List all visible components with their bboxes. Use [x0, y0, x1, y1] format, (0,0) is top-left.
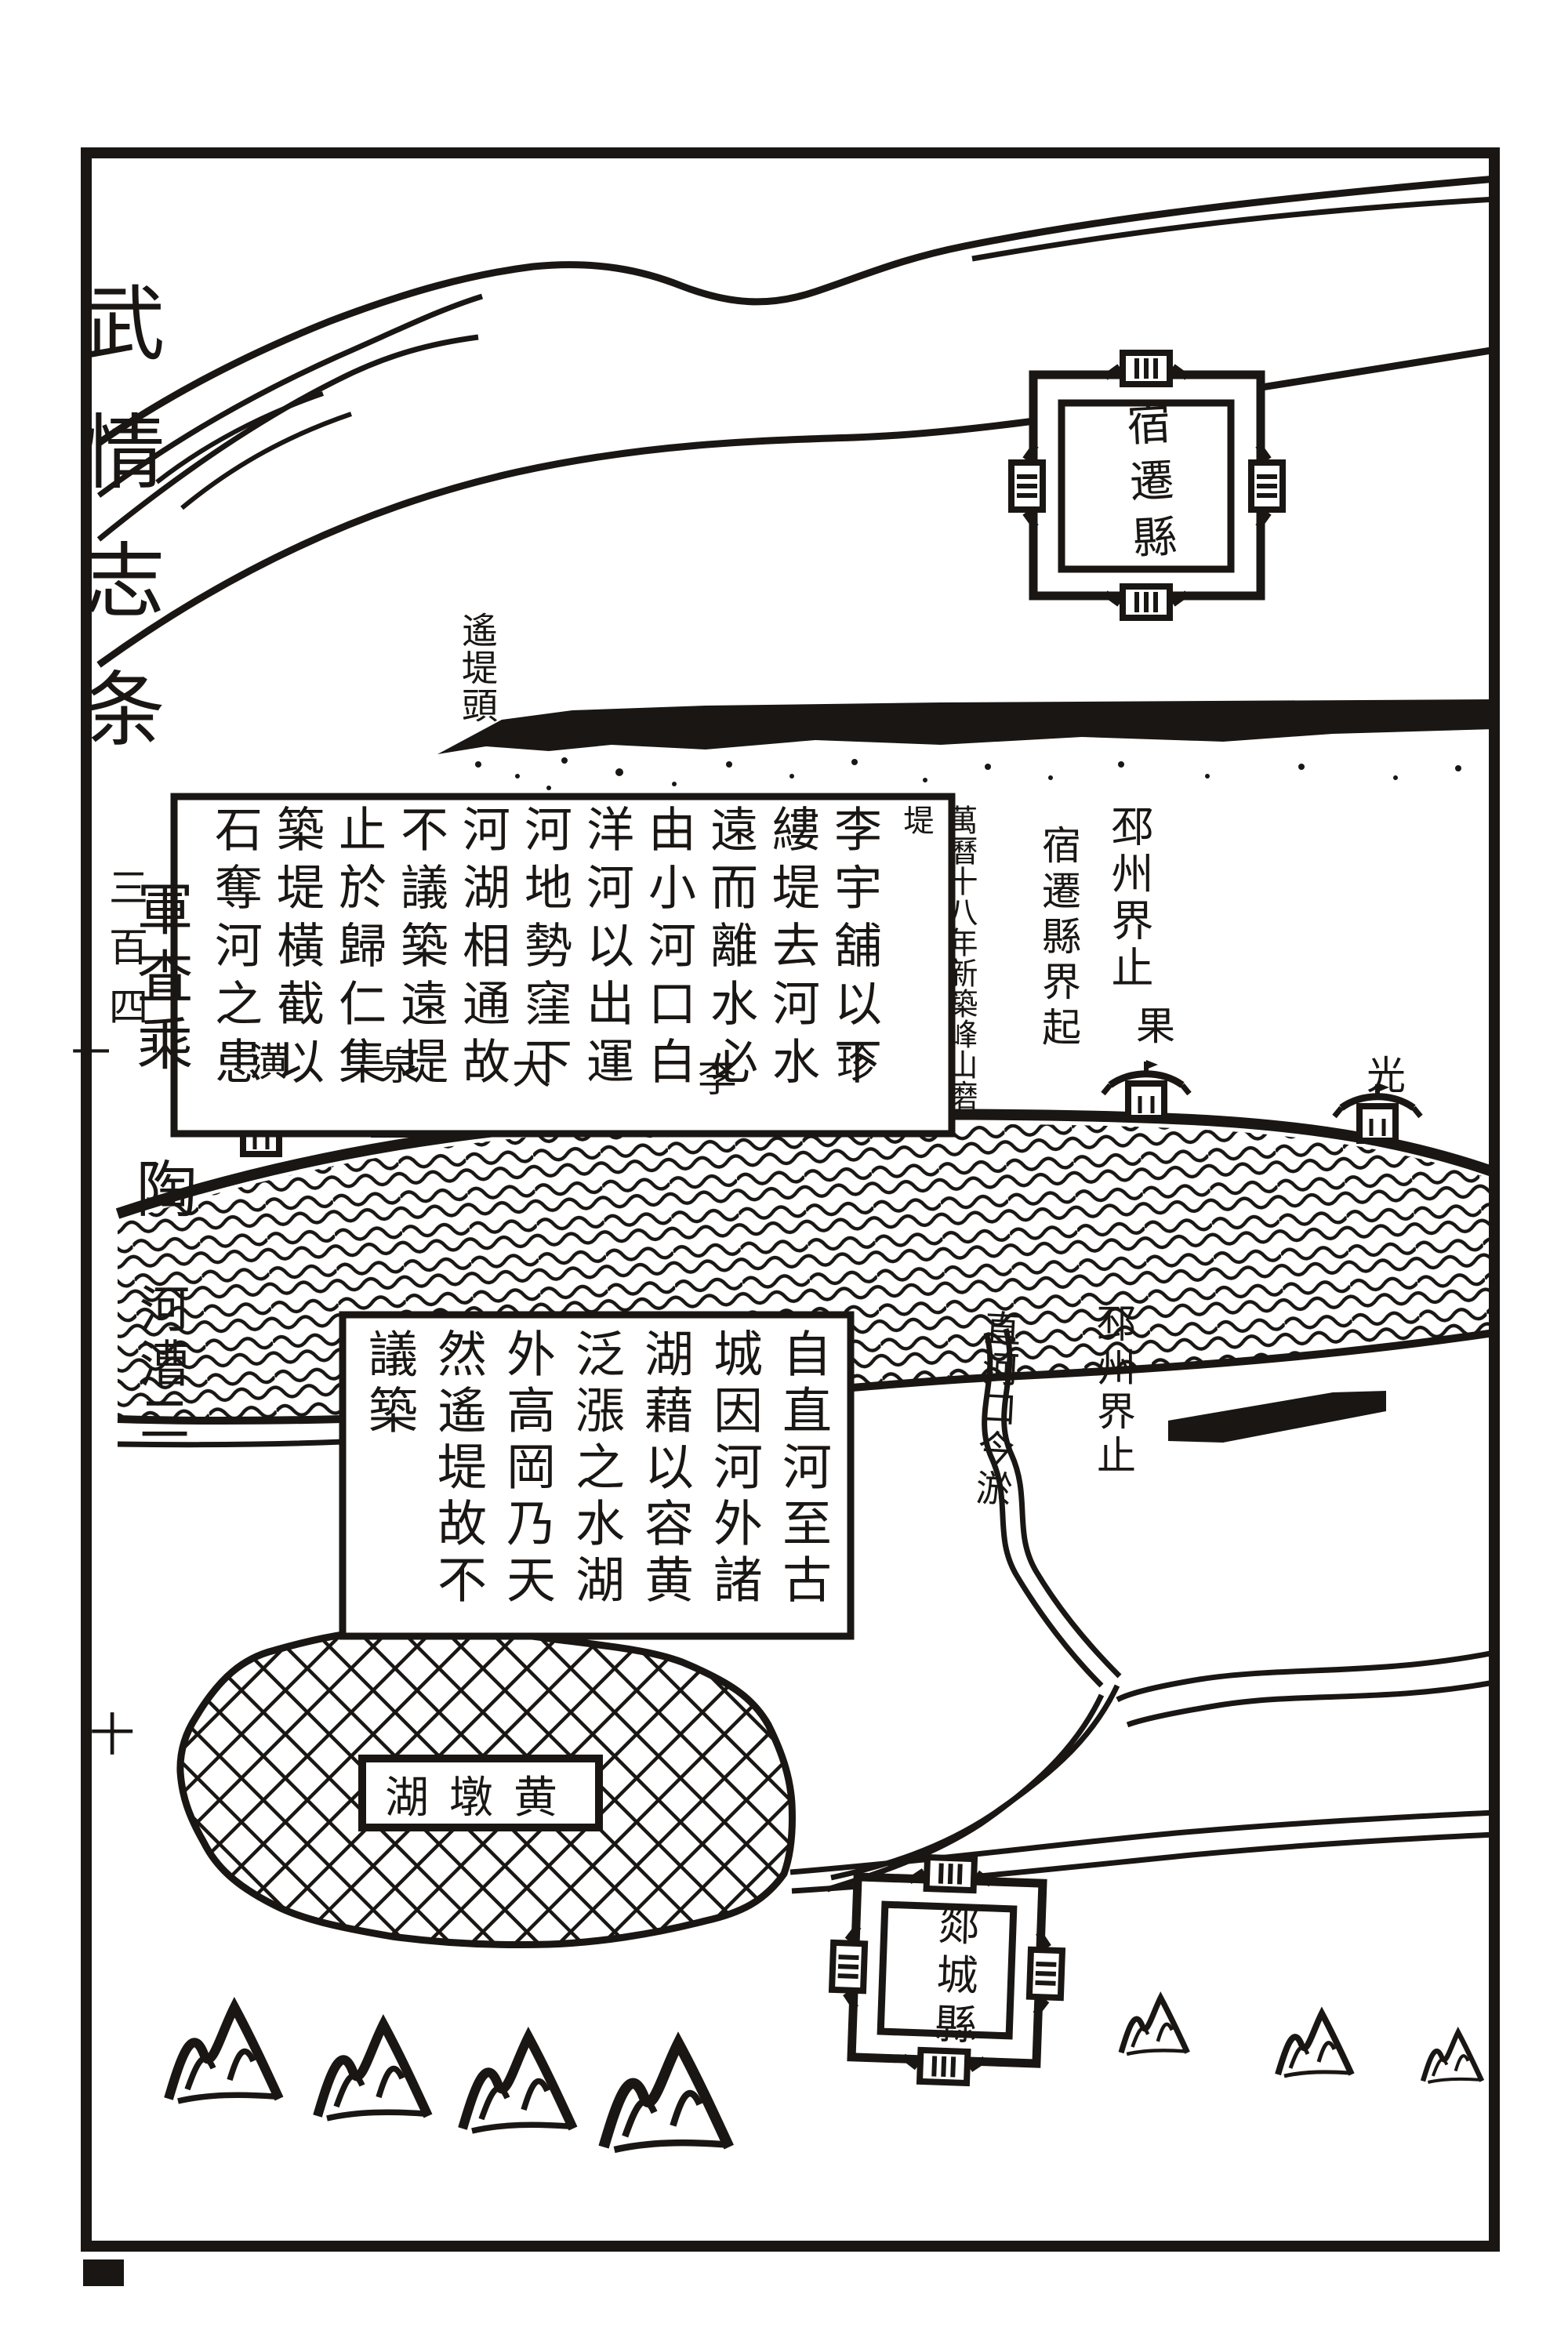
new-dike-band: [437, 699, 1494, 790]
station-label-2: 泉: [368, 1045, 425, 1084]
station-label-1: 潢: [238, 1041, 294, 1080]
folio-number: 十: [75, 1711, 141, 1756]
margin-volume-number-left: 一: [60, 1032, 116, 1071]
page-corner-mark: [83, 2259, 124, 2286]
zhihe-river: [790, 1329, 1494, 1891]
station-label-7: 光: [1355, 1054, 1411, 1094]
upper-river: [99, 179, 1496, 665]
date-note-column: 萬曆十八年新築峰山磨堤: [894, 804, 982, 1127]
pizhou-boundary-upper-label: 邳州界止: [1098, 804, 1160, 993]
suqian-boundary-start-label: 宿遷縣界起: [1030, 825, 1087, 1052]
station-label-5: 珍: [825, 1043, 881, 1082]
margin-note-middle: 陶: [118, 1157, 205, 1218]
map-artwork: [0, 0, 1568, 2352]
dike-head-label: 遙堤頭: [452, 612, 503, 724]
margin-book-title: 武情志条: [58, 281, 176, 795]
mountains: [169, 1998, 1482, 2150]
margin-note-bottom: 河漕二: [124, 1283, 196, 1447]
tancheng-city-name: 郯城縣: [921, 1903, 986, 2053]
pizhou-boundary-lower-label: 邳州界止: [1085, 1303, 1142, 1479]
woodblock-map-page: 武情志条 三百四 一 軍査乘 陶 河漕二 十 遙堤頭 邳州界止 宿遷縣界起 萬曆…: [0, 0, 1568, 2352]
lake-name-label: 湖墩黄: [367, 1766, 596, 1822]
zhihe-mouth-label: 直河口今淤: [962, 1308, 1026, 1510]
station-label-3: 大: [500, 1049, 557, 1088]
suqian-city-name: 宿遷縣: [1112, 400, 1184, 572]
middle-text-block: 自直河至古 城因河外諸 湖藉以容黄 泛漲之水湖 外高岡乃天 然遙堤故不 議築: [354, 1328, 837, 1626]
station-label-6: 果: [1124, 1005, 1181, 1044]
station-label-4: 李: [686, 1057, 742, 1096]
margin-note-top: 軍査乘: [119, 880, 201, 1082]
